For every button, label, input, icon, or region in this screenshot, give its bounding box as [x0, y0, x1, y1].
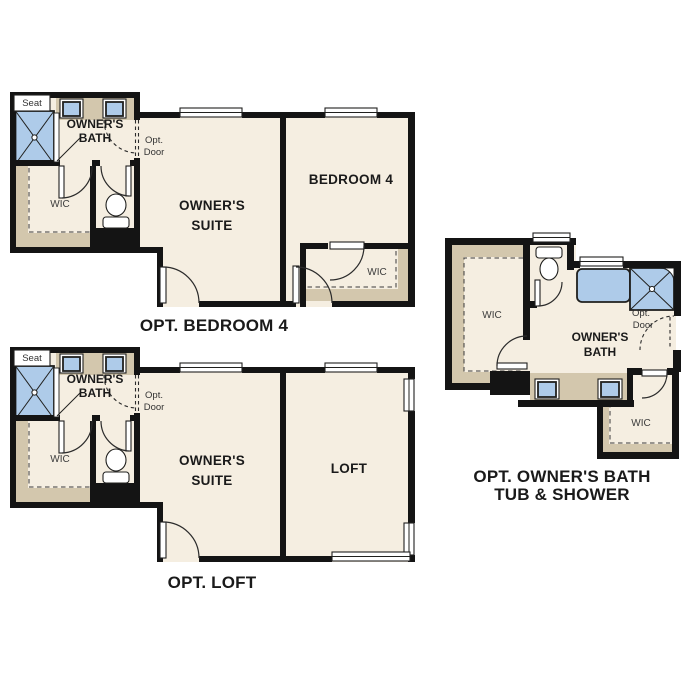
- opt-door-label: Door: [144, 402, 165, 413]
- plan-title-opt-owners-bath: TUB & SHOWER: [494, 485, 630, 504]
- opt-door-label: Door: [144, 147, 165, 158]
- owners-bath-label: BATH: [79, 386, 111, 400]
- seat-label: Seat: [22, 98, 42, 109]
- wic-label: WIC: [631, 418, 650, 429]
- plan-opt-loft: Seat OWNER'S BATH Opt. Door WIC OWNER'S …: [10, 347, 415, 592]
- wic-label: WIC: [482, 310, 501, 321]
- plan-opt-owners-bath: WIC OWNER'S BATH Opt. Door WIC OPT. OWNE…: [445, 233, 681, 504]
- shower-fixture: [630, 268, 674, 310]
- owners-bath-label: OWNER'S: [67, 117, 124, 131]
- owners-bath-label: OWNER'S: [67, 372, 124, 386]
- plan-title-opt-owners-bath: OPT. OWNER'S BATH: [473, 467, 650, 486]
- wic-label: WIC: [367, 267, 386, 278]
- bedroom-4-label: BEDROOM 4: [309, 172, 394, 187]
- opt-door-label: Opt.: [632, 308, 650, 319]
- tub-fixture: [577, 269, 630, 302]
- plan-title-opt-loft: OPT. LOFT: [168, 573, 257, 592]
- owners-bath-label: BATH: [79, 131, 111, 145]
- loft-label: LOFT: [331, 461, 368, 476]
- owners-suite-label: OWNER'S: [179, 453, 245, 468]
- floor-plan-canvas: Seat OWNER'S BATH Opt. Door WIC OWNER'S …: [0, 0, 687, 687]
- wic-label: WIC: [50, 454, 69, 465]
- opt-door-label: Opt.: [145, 390, 163, 401]
- owners-bath-label: BATH: [584, 345, 616, 359]
- opt-door-label: Door: [633, 320, 654, 331]
- owners-suite-label: SUITE: [191, 218, 232, 233]
- seat-label: Seat: [22, 353, 42, 364]
- bedroom-4-room: [286, 108, 415, 307]
- opt-door-label: Opt.: [145, 135, 163, 146]
- wic-label: WIC: [50, 199, 69, 210]
- owners-bath-label: OWNER'S: [572, 330, 629, 344]
- plan-title-opt-bedroom-4: OPT. BEDROOM 4: [140, 316, 289, 335]
- plan-opt-bedroom-4: Seat OWNER'S BATH Opt. Door WIC OWNER'S …: [10, 92, 415, 335]
- owners-suite-label: SUITE: [191, 473, 232, 488]
- owners-suite-label: OWNER'S: [179, 198, 245, 213]
